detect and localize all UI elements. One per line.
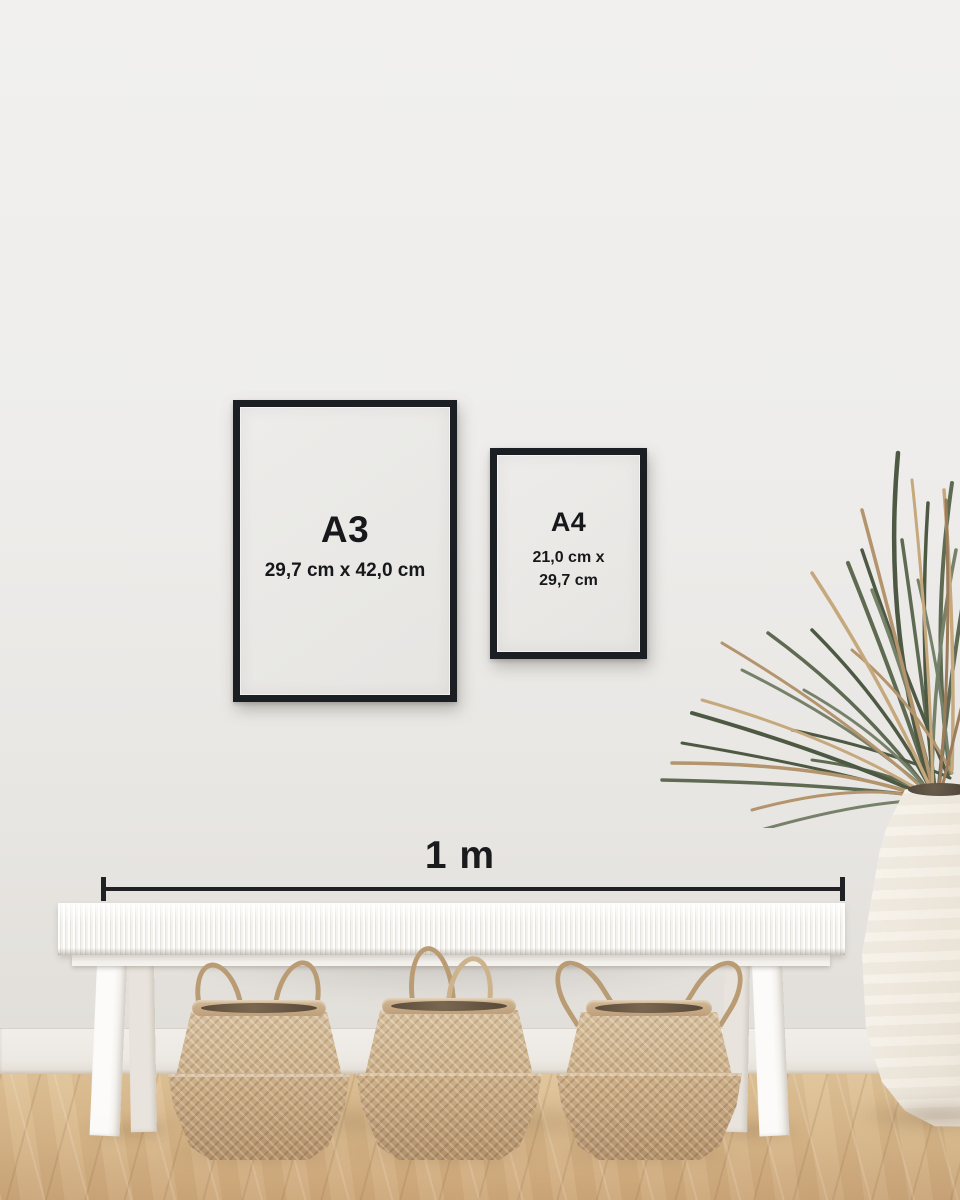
size-guide-scene: { "size_guide": { "frames": [ { "label":… — [0, 0, 960, 1200]
poster-a3-size-label: A3 — [321, 509, 369, 551]
basket-opening — [595, 1003, 703, 1013]
basket-upper-weave — [176, 1012, 342, 1076]
basket-upper-weave — [365, 1010, 533, 1075]
poster-a4-dimensions-line1: 21,0 cm x — [532, 549, 604, 566]
poster-a3-paper: A3 29,7 cm x 42,0 cm — [240, 407, 450, 695]
seagrass-basket-left — [168, 1000, 350, 1160]
basket-lower-weave — [168, 1074, 350, 1160]
seagrass-basket-center — [356, 998, 542, 1160]
poster-a4-dimensions-line2: 29,7 cm — [539, 572, 598, 589]
poster-frame-a3: A3 29,7 cm x 42,0 cm — [233, 400, 457, 702]
basket-lower-weave — [356, 1073, 542, 1160]
poster-a3-dimensions: 29,7 cm x 42,0 cm — [265, 560, 426, 582]
basket-upper-weave — [566, 1012, 732, 1075]
bench-woven-seat — [58, 903, 845, 955]
scale-label: 1 m — [360, 834, 560, 878]
scale-measurement-line — [101, 887, 845, 891]
poster-a4-dimensions: 21,0 cm x 29,7 cm — [532, 546, 604, 592]
basket-lower-weave — [556, 1073, 742, 1160]
poster-a4-size-label: A4 — [551, 507, 586, 538]
basket-opening — [391, 1001, 507, 1011]
palm-plant-illustration — [600, 328, 960, 828]
basket-opening — [201, 1003, 317, 1013]
bench-leg-back-left — [128, 964, 157, 1132]
seagrass-basket-right — [556, 1000, 742, 1160]
